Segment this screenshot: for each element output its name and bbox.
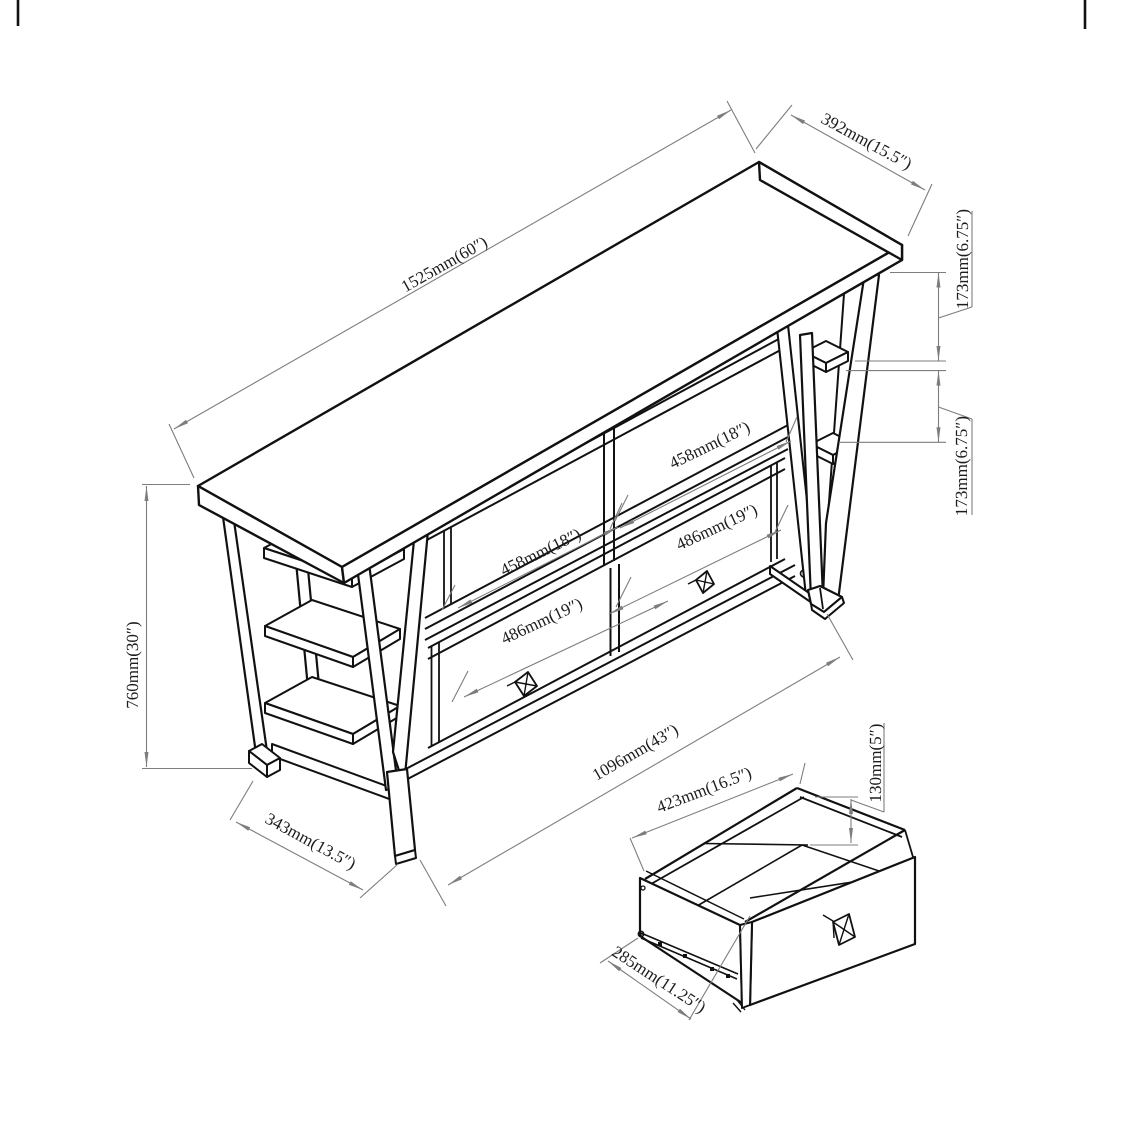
svg-text:173mm(6.75″): 173mm(6.75″) xyxy=(952,416,971,516)
svg-text:173mm(6.75″): 173mm(6.75″) xyxy=(953,209,972,309)
svg-text:760mm(30″): 760mm(30″) xyxy=(123,621,142,708)
svg-text:130mm(5″): 130mm(5″) xyxy=(866,724,885,803)
